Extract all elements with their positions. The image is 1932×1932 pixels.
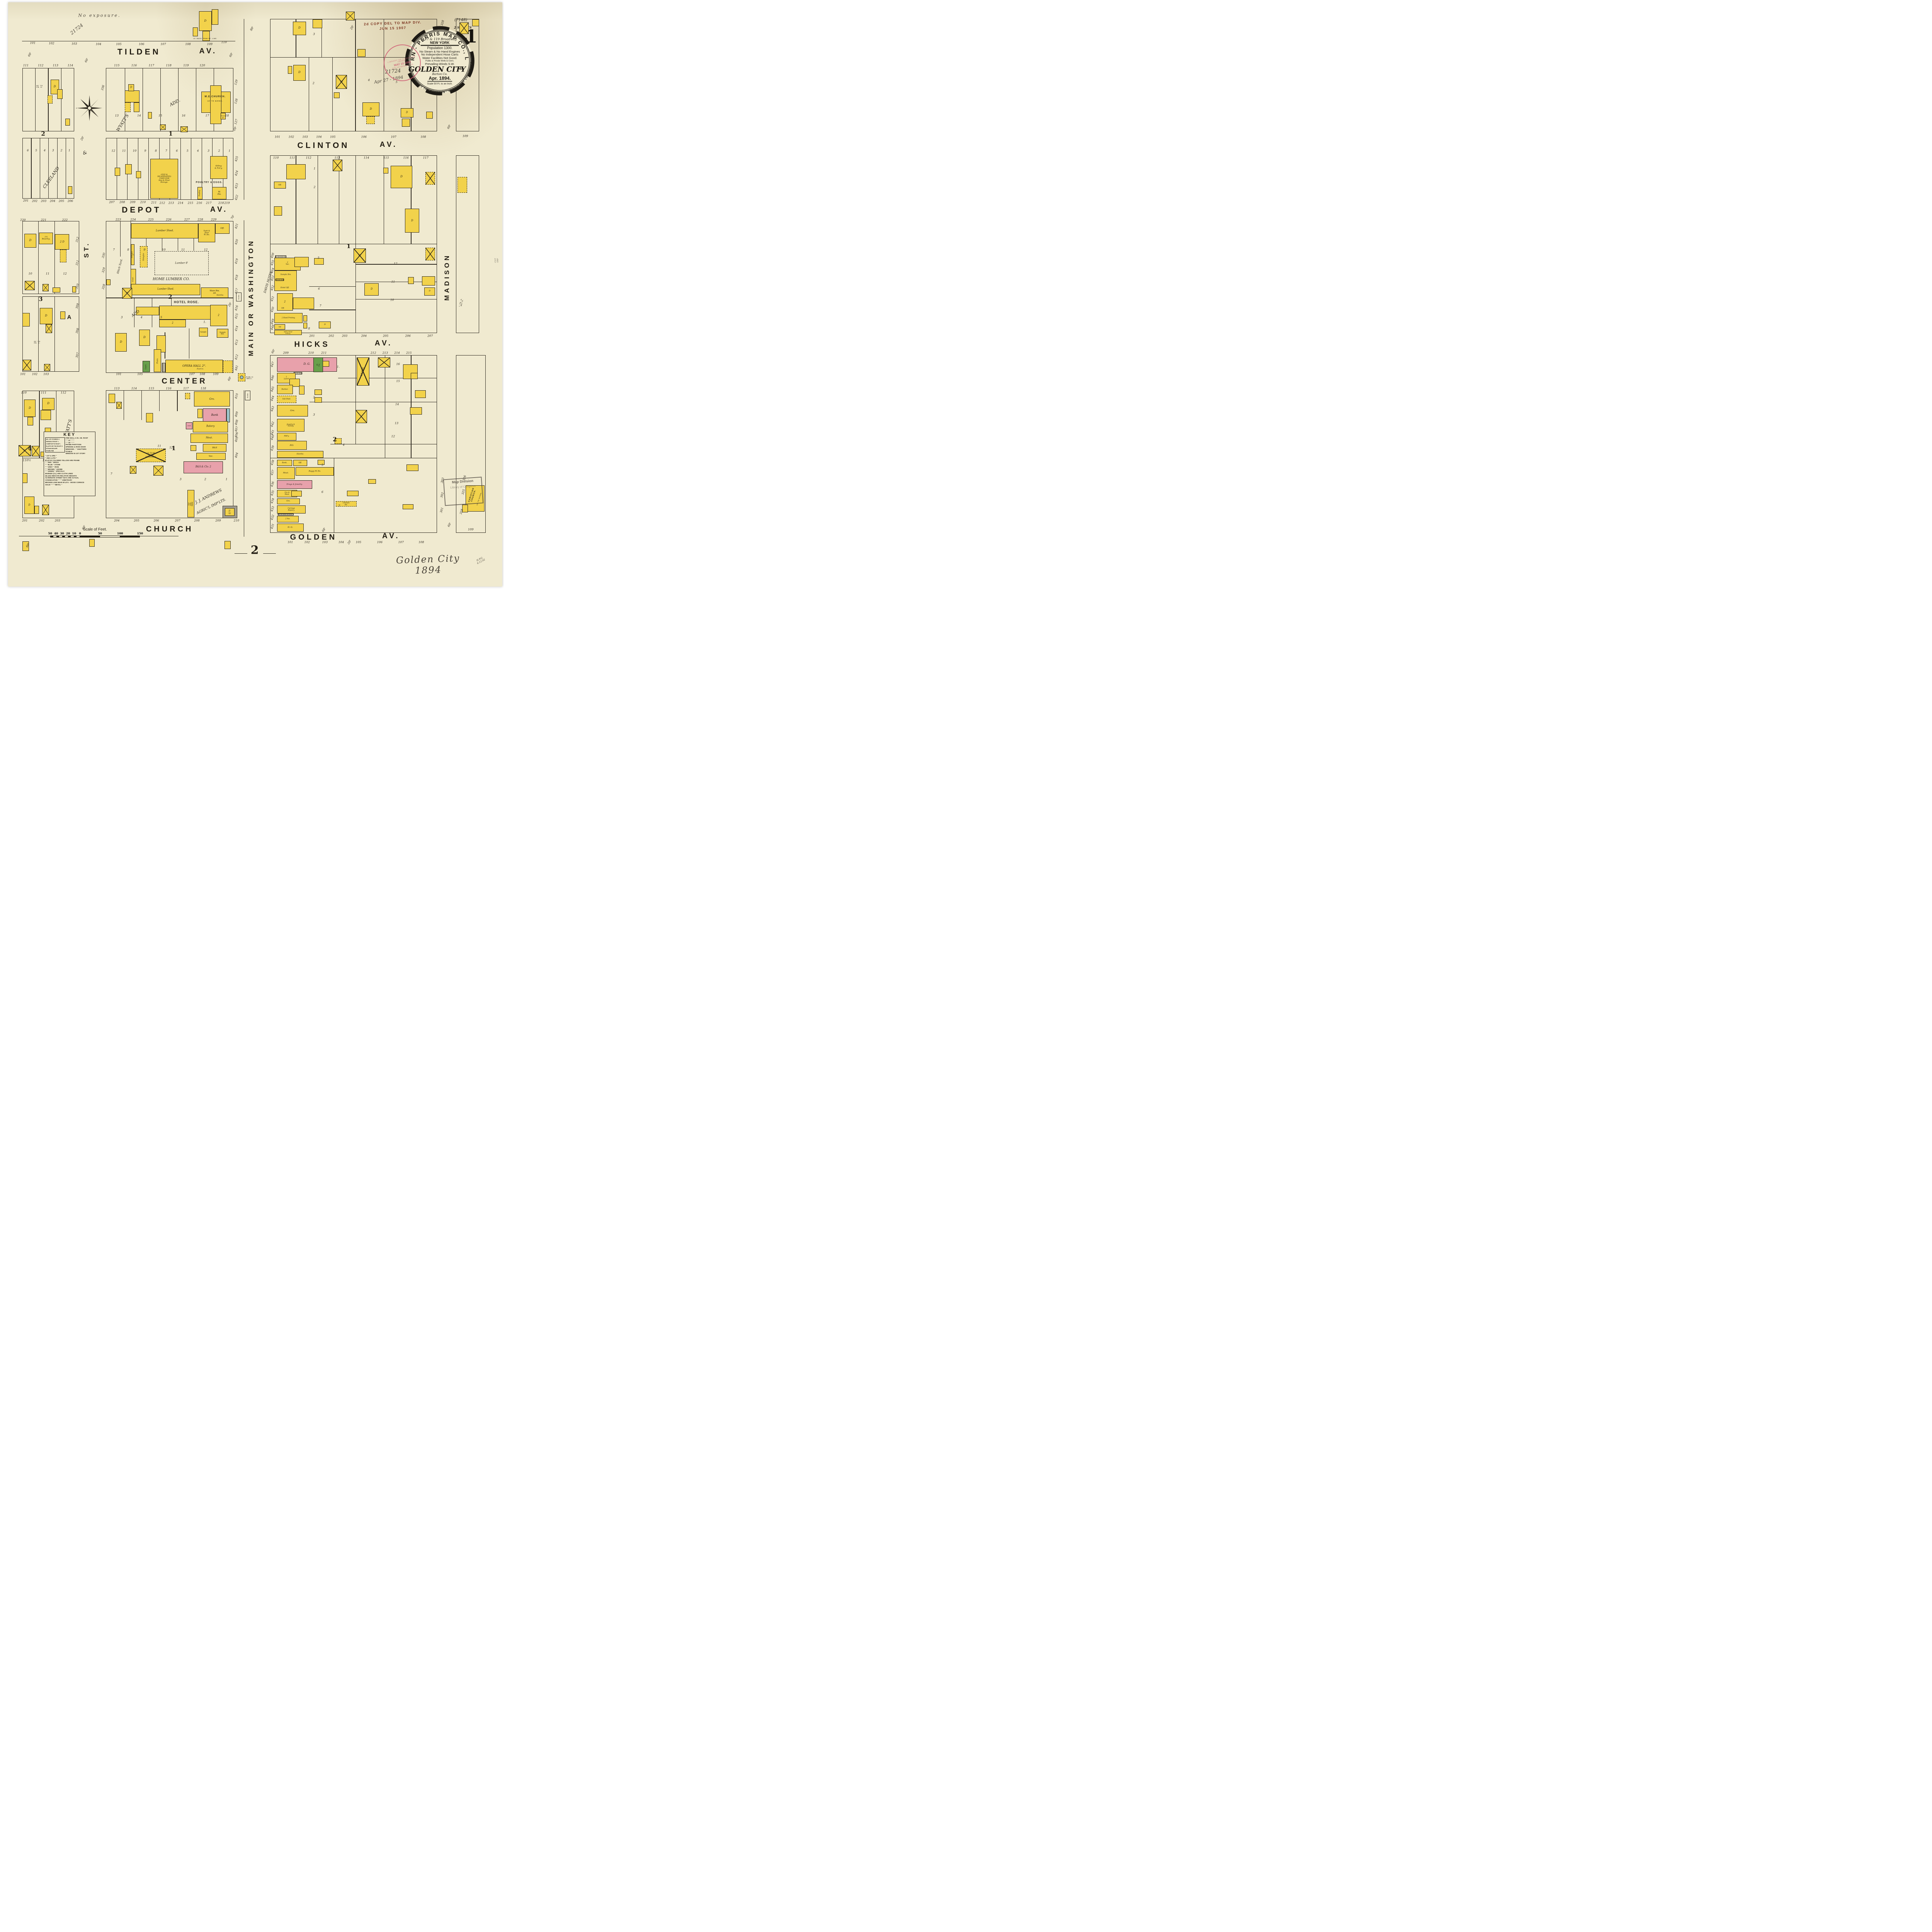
street-number: 209 [283,351,289,355]
lot-line [309,57,309,131]
building-label: Gro. [290,410,295,412]
street-number: 110 [221,40,227,44]
building-label: Chicken Ho. [341,502,351,505]
street-number: 206 [68,199,73,203]
street-number: 106 [361,135,367,138]
street-number: 106 [377,540,383,544]
street-number: 11 [181,248,185,251]
block-number: 2 [333,436,337,443]
street-number: 15 [158,114,162,117]
street-number: 6 [321,490,323,493]
street-number: 201 [22,519,27,522]
building-label: D [370,108,372,111]
building [426,112,433,119]
street-number: 10 [162,248,166,251]
building: Gro. [277,498,300,504]
street-number: 419 [234,258,239,264]
street-number: 103 [43,372,49,376]
street-number: 1. [203,320,206,324]
building: Meat. [190,434,228,443]
street-number: 128 [233,98,238,104]
street-number: 114 [131,387,137,390]
lot-line [120,221,121,257]
street-number: 13 [115,114,119,117]
lot-line [338,378,437,378]
building-label: Hardw. [297,453,304,456]
handwritten-no-exposure: No exposure. [78,14,121,19]
building [27,417,33,425]
building [60,311,65,319]
building-label: D [47,403,49,406]
street-number: 221 [41,218,46,221]
street-number: 425 [234,156,239,162]
lot-line [178,238,178,250]
building-label: Off. [220,227,224,230]
street-name: AV. [199,47,218,56]
street-number: 215 [188,201,193,204]
street-number: 4 [197,149,199,153]
street-number: 1 [229,149,231,153]
building [422,276,435,286]
building: D [40,308,53,324]
lot-line [309,286,355,287]
street-number: 110½ [23,459,31,462]
building [125,90,139,102]
building-label: W. Ho. [216,191,223,196]
scale-tick-label: 50 [48,532,52,535]
building-label: D [120,341,122,344]
svg-text:N: N [89,95,90,95]
street-number: 105 [116,42,121,46]
street-name: AV. [380,141,398,149]
building: P.O. [277,441,307,450]
svg-text:Population 1300.: Population 1300. [427,46,452,50]
building [22,313,30,327]
street-number: 414 [234,325,239,332]
building [315,397,322,403]
street-number: 420 [234,239,239,245]
building [68,186,73,194]
street-number: 2 [204,477,206,481]
street-number: 422 [234,194,239,201]
building-label: Gro & Meat. [282,492,292,495]
building-label: Bank. [282,462,287,464]
map-annotation: M.E.CHURCH. [205,95,226,98]
building: Drugs & Jewelry. [277,480,312,489]
street-number: 17 [206,114,209,117]
map-annotation: Hardw. [217,294,224,297]
street-number: 115 [149,387,154,390]
building-label: Shingles 5' [131,252,134,258]
street-number: 219 [224,201,230,204]
building-label: Bakery [206,425,214,428]
building: 1½ [336,75,347,89]
street-number: 7 [113,248,115,251]
building: Lumber Shed. [131,284,200,295]
lot-line [48,138,49,199]
street-number: 102 [49,42,54,45]
building [347,491,358,496]
street-number: 104 [338,540,344,544]
building [190,445,196,451]
street-number: 109 [213,372,218,376]
street-number: 101 [20,372,26,376]
lot-line [38,221,39,294]
building-label: 1½ TO BE 2.S.BR. EXTENSION. [144,452,158,458]
lot-line [35,68,36,132]
street-number: 114 [364,156,369,160]
building-label: Vac. [209,455,213,457]
street-number: 7 [165,149,167,153]
street-number: 5 [187,149,189,153]
scale-tick-label: 50 [98,532,102,535]
street-number: 203 [41,199,46,203]
building [210,85,221,124]
street-name: A [67,314,74,320]
building [226,408,230,422]
street-number: 70' [230,214,235,220]
street-number: 205 [134,519,139,522]
street-number: 1 [68,148,70,152]
street-name: HICKS [294,340,330,349]
street-number: 413 [234,339,239,345]
map-annotation: & [82,150,88,156]
street-number: 9 [144,248,146,251]
building: Ware Rm. 2d. [201,287,229,298]
street-number: 8 [127,248,129,251]
street-number: 3 [52,148,54,152]
building: Off. [293,460,307,466]
street-number: 108 [420,135,426,138]
building-label: (OLD & DILAPIDATED) USED FOR Hay & Flour… [157,174,171,184]
street-number: 104 [316,135,321,138]
street-number: 201 [309,334,315,338]
street-number: 14 [137,114,141,117]
street-number: 9 [144,149,146,153]
building-label: Off. [278,184,281,186]
building [276,279,284,281]
key-title: KEY [45,433,94,437]
building [223,361,232,373]
building [34,506,39,514]
street-number: 10 [390,298,394,301]
building [146,413,153,422]
building-label: Scales [238,295,239,299]
street-number: 8 [155,149,157,153]
street-number: 6 [27,148,29,152]
building-label: 2 D [60,240,64,243]
street-number: 114 [68,64,73,67]
street-number: 7 [111,472,112,476]
street-number: 7 [320,304,321,307]
building [224,541,230,549]
map-annotation: 18' TO EAVES. [207,100,223,102]
building: Hardw. [277,451,323,458]
street-number: 116 [166,387,171,390]
building: Bakery [193,421,228,432]
building-label: LIVERY [361,367,366,376]
block-number: 1 [169,130,173,137]
building [293,298,314,309]
building-label: 2 Vac. [285,518,290,520]
map-annotation: Furn'e. [197,368,204,371]
street-number: 330 [101,252,106,259]
building-label: Lumber Shed. [156,230,174,232]
street-number: 112 [61,391,66,394]
street-number: 117 [423,156,429,160]
building-label: D [204,20,206,23]
bottom-page-number: 2 [251,544,259,557]
street-number: 423 [234,183,239,189]
building: D [24,497,34,514]
building-label: Meat. [206,437,213,440]
building [411,373,418,379]
building [425,248,435,260]
street-number: 329 [101,267,106,273]
lot-line [330,444,437,444]
street-number: 215 [406,351,412,355]
street-name: CENTER [162,377,207,386]
building [355,410,367,423]
scale-title: Scale of Feet. [50,527,140,532]
street-number: 415 [234,313,239,319]
street-number: 2 [314,185,316,189]
scale-tick-label: 30 [60,532,64,535]
street-number: 408 [234,419,239,425]
street-number: 3 [207,149,209,153]
building: 1½ TO BE 2.S.BR. EXTENSION. [136,449,166,462]
building [159,306,212,320]
building [197,409,202,418]
street-number: 202 [32,199,37,203]
street-number: 209 [215,519,221,522]
building: Sample Rm. [217,329,229,338]
lot-line [355,155,356,333]
building: 1½ Board'g. [39,233,53,244]
lot-line [334,458,334,532]
building: Off. [274,324,285,330]
building-label: Lumber Shed. [157,288,174,291]
street-number: 213 [383,351,388,355]
map-annotation: Tower. 45' [221,115,225,118]
scanned-map-page: N SANBORN - PERRIS MAP CO., LIMITED COPY… [0,0,504,600]
street-number: 202 [39,519,44,522]
street-number: 212 [160,201,165,204]
street-name: DEPOT [122,206,161,215]
street-number: 129 [233,79,238,85]
street-name: GOLDEN [290,533,337,542]
lot-line [385,355,385,458]
block-number: 3 [39,296,43,303]
lot-line [196,68,196,132]
street-number: 104 [96,42,101,46]
building [115,168,120,176]
building [368,479,376,484]
street-number: 8 [308,327,310,330]
building-label: Carp't. [145,364,147,369]
street-name: ST. [83,241,90,258]
building-label: D [298,71,301,74]
building-label: Jewelry & Variety. [284,423,298,427]
street-number: 60' [446,124,452,130]
street-number: 106 [139,42,144,46]
street-number: 205 [383,334,388,338]
lot-line [309,310,355,310]
building: D [128,84,134,91]
building [130,466,137,474]
building-label: Lumber 8' [175,262,188,265]
lot-line [31,138,31,199]
street-number: 2 [61,148,63,152]
block-number: 2 [41,130,45,137]
street-number: 116 [131,64,137,67]
building: Gro. [277,405,308,417]
building-label: Agr. Imp. Shed. [188,502,194,506]
building: D [24,400,36,417]
building [366,116,375,124]
street-number: 407 [234,426,239,432]
handwritten-initials: H.P.G. 6.12.92 [475,556,486,565]
building [60,250,66,262]
street-number: 441 [234,365,239,371]
map-sheet: N SANBORN - PERRIS MAP CO., LIMITED COPY… [8,2,502,587]
building-label: Sample Rm. [219,332,226,335]
street-number: 118 [166,64,171,67]
building [193,27,198,36]
street-name: CHURCH [146,525,194,534]
scale-tick-label: 150 [137,532,143,535]
building: D [199,11,212,31]
street-number: 3 [313,413,315,417]
street-number: 4 [141,315,143,319]
building: D [24,234,36,248]
building-label: Coal. [132,277,134,282]
building [22,473,27,483]
building: Bl. Sm. [313,357,323,372]
building [57,89,63,99]
building [25,281,35,290]
scale-tick-label: 20 [66,532,70,535]
building: Agr. Imp. Shed. [187,490,194,517]
lot-line [124,390,124,420]
street-number: 5 [318,256,320,259]
building-label: 2 Lunch [284,376,289,379]
street-number: 204 [114,519,119,522]
street-number: 105 [137,372,143,376]
street-number: 111 [23,64,29,67]
building-label: D [411,219,413,222]
street-number: 5 [160,315,162,319]
building-label: Sample [200,331,206,333]
cut-off-note: CUT OFF [495,258,499,263]
street-number: 101 [275,135,280,138]
building: LIVERY [357,357,369,386]
street-number: 109 [468,527,473,531]
building: D [115,333,126,352]
building: Off. [215,223,230,234]
building: Buggy W. Ho. [296,467,333,475]
street-number: 110 [273,156,279,160]
street-number: 112 [306,156,311,160]
map-key-legend: KEY NO. OF STORIES 3SHINGLE ROOF ×COMPOS… [44,432,95,496]
block-number: 2 [168,293,172,300]
building: Killing & Pck'g. [210,156,227,179]
building [41,410,51,420]
building: D. G. [277,524,304,532]
building [383,168,388,173]
street-number: 4 [368,78,370,82]
street-number: 209 [130,201,135,204]
building [288,66,293,74]
street-number: 328 [101,284,106,290]
street-number: 11 [46,272,49,275]
street-number: 207 [175,519,180,522]
street-number: 210 [234,519,239,522]
building [303,315,307,321]
building [408,277,414,284]
building [53,287,60,293]
building-label: Photo. [156,358,158,364]
block-number: 1 [347,243,350,250]
building [333,160,342,171]
building [425,172,435,185]
building: 2 [210,305,227,326]
street-name: TILDEN [117,48,161,57]
street-number: 14 [395,403,399,406]
street-number: 111 [41,391,46,394]
building: Salt Shed. [277,396,296,403]
block-number: 1 [172,445,175,452]
map-division-stamp: Map Division Library of Congress [443,476,484,506]
street-number: 202 [328,334,334,338]
building-label: Buggy W. Ho. [309,470,321,472]
map-annotation: HOME LUMBER CO. [153,277,190,281]
street-number: 4 [343,443,345,446]
building [299,386,304,395]
street-number: 108 [199,372,205,376]
scale-tick-label: 10 [72,532,76,535]
handwritten-title: Golden City 1894 [391,553,466,577]
street-number: 109 [463,134,468,138]
building-label: D [29,407,31,410]
building [315,389,322,395]
building-label: 2 Vac. [286,262,289,266]
building-label: Shingles [143,253,145,260]
building-label: Bank [211,414,218,417]
building [22,360,31,370]
lot-line [159,390,160,411]
lot-line [355,355,356,444]
building: Jewelry & Variety. [277,419,305,432]
building-label: 1½ [340,81,343,83]
building [274,206,282,216]
street-number: 210 [308,351,314,355]
map-annotation: 90' TO FR. D. [36,85,43,88]
street-number: 101 [30,41,36,45]
building [180,126,188,132]
scale-tick-label: 40 [54,532,58,535]
building: Photo. [154,349,161,372]
street-number: 120 [199,64,205,67]
building [32,446,39,456]
building: D [42,398,54,410]
lot-line [54,296,55,372]
building-label: D [406,112,408,114]
svg-text:117 & 119 Broadway: 117 & 119 Broadway [422,37,457,41]
svg-text:No Independent Hose Carts: No Independent Hose Carts [421,53,458,56]
building [410,407,422,415]
street-number: 2 [218,149,220,153]
